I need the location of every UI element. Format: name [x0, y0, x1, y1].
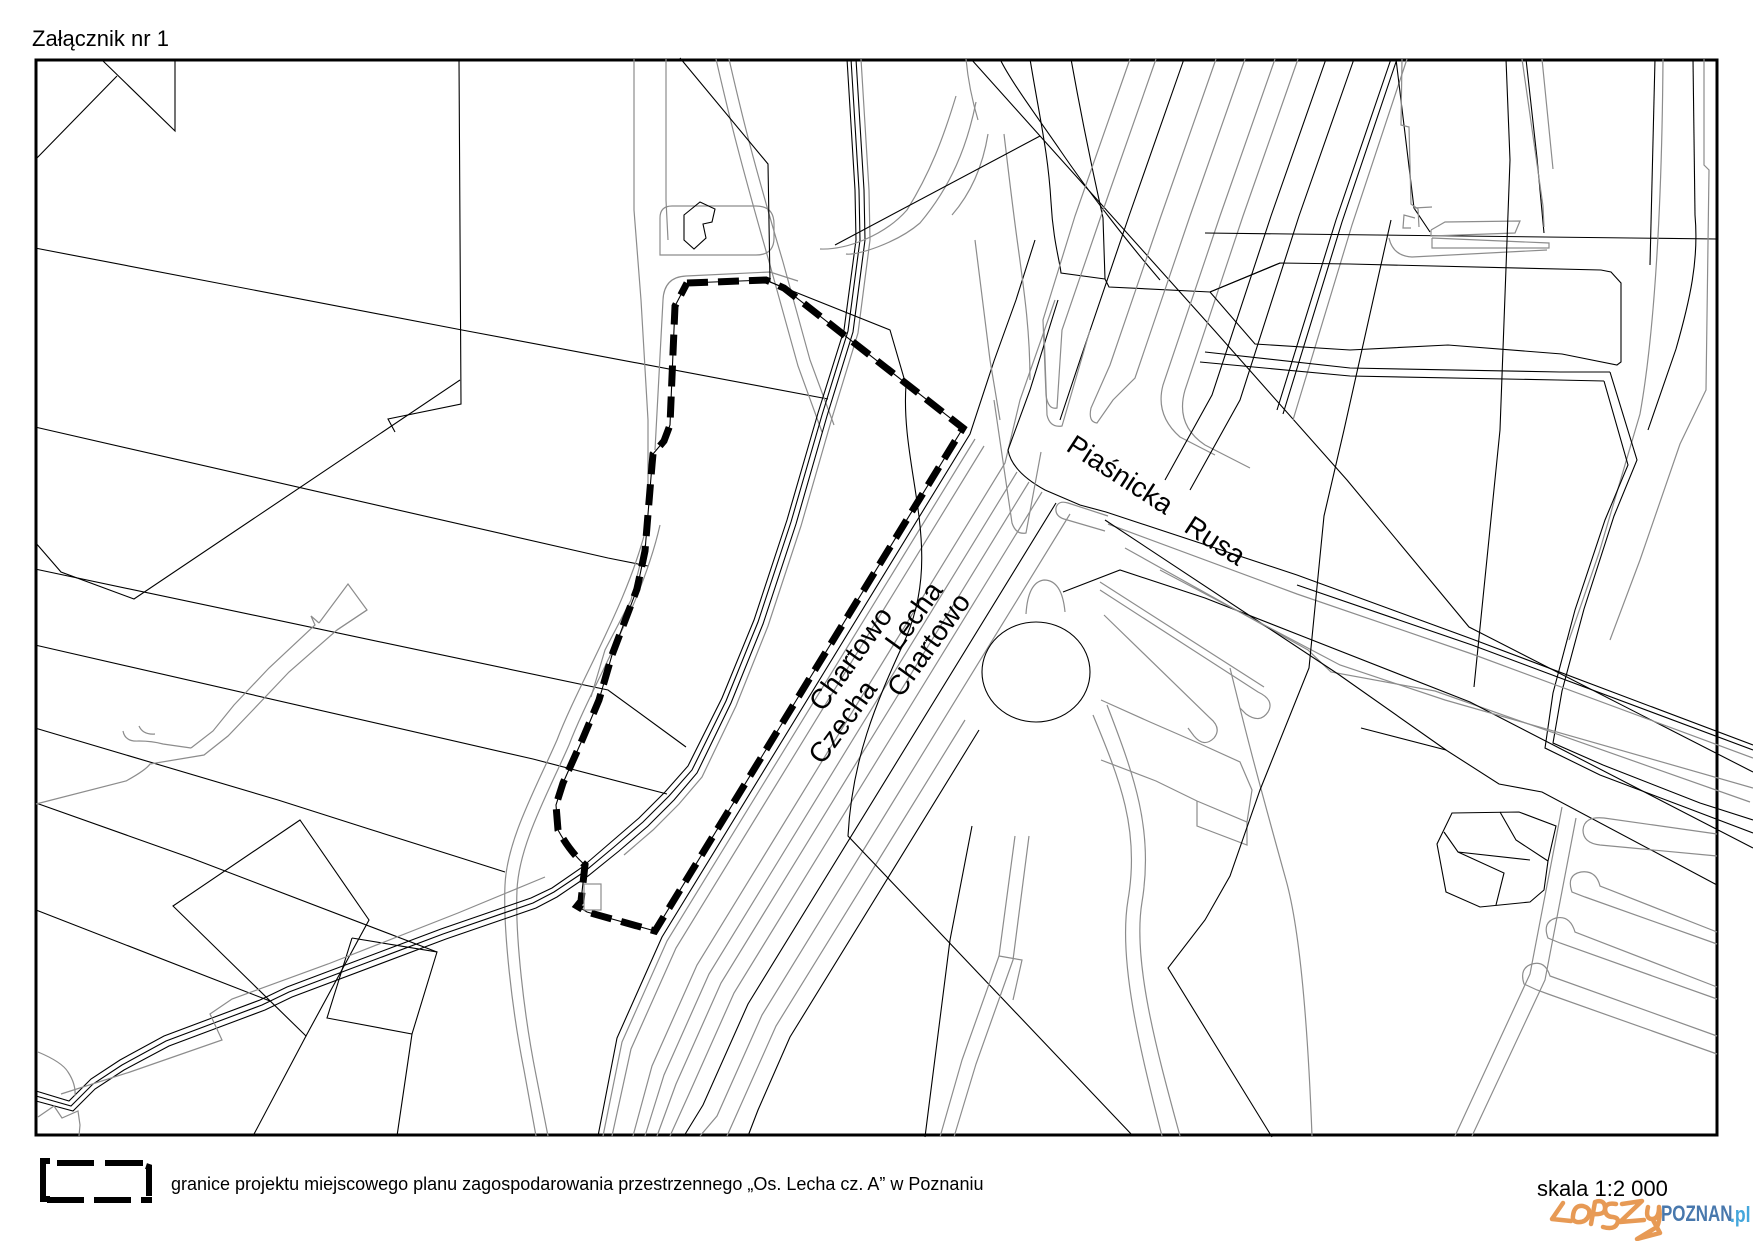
svg-text:skala 1:2 000: skala 1:2 000 — [1537, 1176, 1668, 1201]
svg-text:POZNAN: POZNAN — [1661, 1202, 1733, 1227]
svg-text:.pl: .pl — [1730, 1203, 1751, 1227]
svg-text:granice projektu miejscowego p: granice projektu miejscowego planu zagos… — [171, 1174, 983, 1194]
svg-text:Załącznik nr 1: Załącznik nr 1 — [32, 26, 169, 51]
